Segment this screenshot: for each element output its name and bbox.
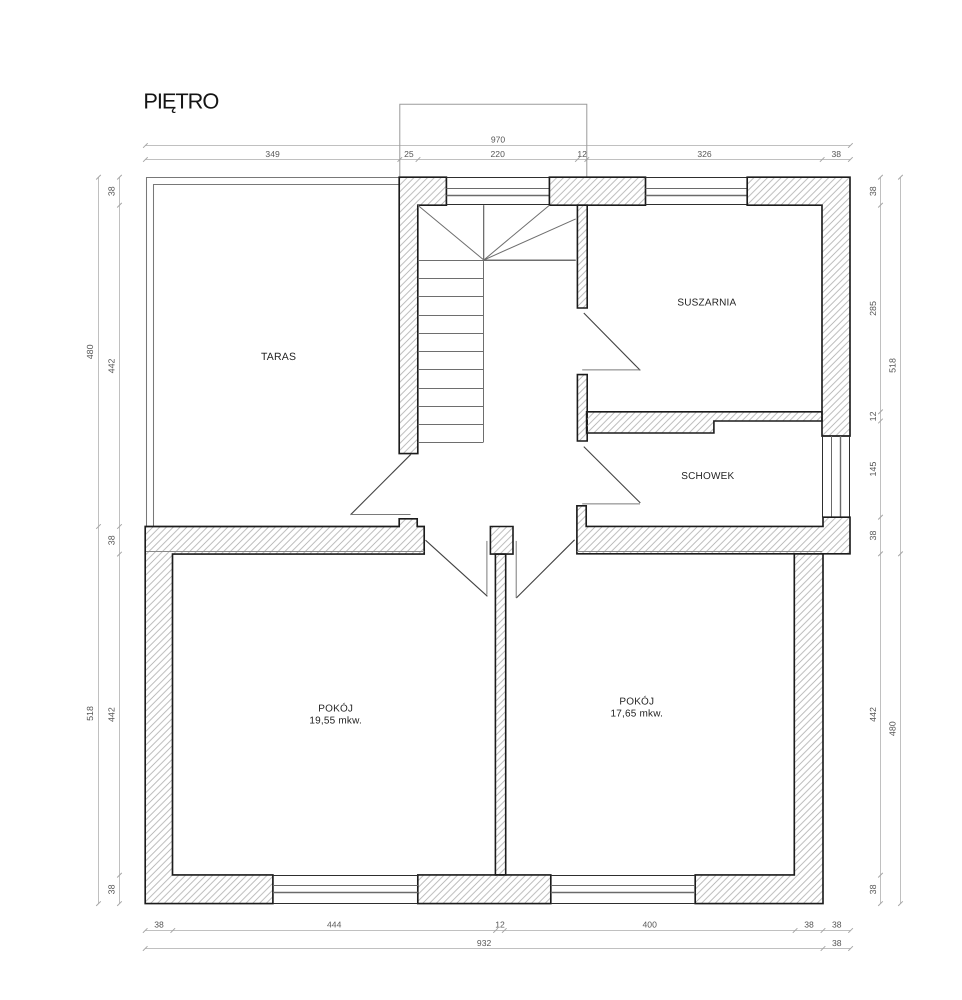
svg-text:326: 326 (697, 149, 712, 159)
svg-text:PIĘTRO: PIĘTRO (143, 89, 218, 114)
svg-text:444: 444 (327, 920, 342, 930)
svg-text:932: 932 (477, 938, 492, 948)
svg-text:SCHOWEK: SCHOWEK (681, 471, 734, 482)
svg-text:480: 480 (888, 721, 898, 736)
svg-text:145: 145 (868, 462, 878, 477)
svg-text:442: 442 (107, 358, 117, 373)
svg-text:38: 38 (832, 938, 842, 948)
svg-text:38: 38 (832, 920, 842, 930)
svg-text:970: 970 (491, 135, 506, 145)
svg-text:285: 285 (868, 301, 878, 316)
svg-text:12: 12 (577, 149, 587, 159)
svg-text:12: 12 (495, 920, 505, 930)
svg-text:349: 349 (265, 149, 280, 159)
svg-text:12: 12 (868, 411, 878, 421)
svg-text:38: 38 (868, 531, 878, 541)
svg-text:38: 38 (868, 884, 878, 894)
svg-text:38: 38 (107, 186, 117, 196)
svg-text:38: 38 (804, 920, 814, 930)
svg-text:518: 518 (85, 706, 95, 721)
svg-text:17,65 mkw.: 17,65 mkw. (611, 709, 664, 720)
svg-text:19,55 mkw.: 19,55 mkw. (309, 715, 362, 726)
svg-text:400: 400 (643, 920, 658, 930)
svg-text:480: 480 (85, 344, 95, 359)
svg-text:38: 38 (832, 149, 842, 159)
svg-text:442: 442 (868, 707, 878, 722)
svg-text:38: 38 (868, 186, 878, 196)
svg-text:38: 38 (107, 535, 117, 545)
svg-text:38: 38 (107, 884, 117, 894)
svg-text:518: 518 (888, 358, 898, 373)
svg-text:442: 442 (107, 707, 117, 722)
svg-text:38: 38 (154, 920, 164, 930)
svg-text:220: 220 (491, 149, 506, 159)
svg-text:TARAS: TARAS (261, 351, 296, 363)
svg-text:25: 25 (404, 149, 414, 159)
svg-text:SUSZARNIA: SUSZARNIA (677, 298, 736, 309)
svg-text:POKÓJ: POKÓJ (619, 696, 654, 708)
svg-text:POKÓJ: POKÓJ (318, 702, 353, 714)
